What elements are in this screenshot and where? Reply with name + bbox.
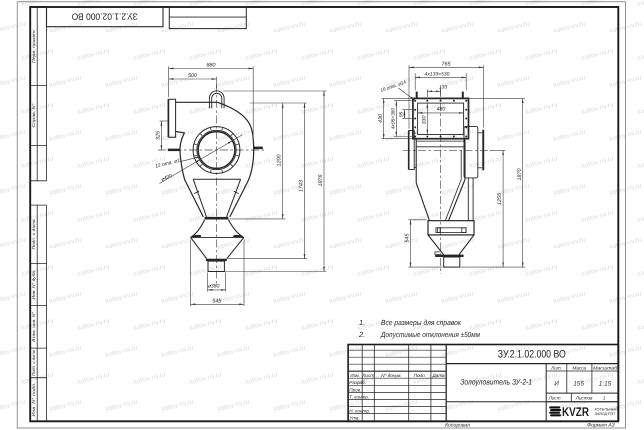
svg-text:155: 155 (573, 381, 584, 388)
svg-text:545: 545 (212, 298, 222, 304)
svg-text:Инв. N° дубл.: Инв. N° дубл. (31, 270, 36, 300)
svg-text:2.: 2. (358, 330, 365, 339)
svg-text:1876: 1876 (318, 175, 324, 187)
svg-text:Масштаб: Масштаб (593, 365, 617, 370)
svg-text:Подп.: Подп. (414, 373, 426, 378)
svg-text:KVZR: KVZR (562, 405, 589, 419)
svg-text:Утв.: Утв. (349, 416, 359, 421)
svg-text:480: 480 (437, 106, 446, 112)
svg-text:Листов: Листов (575, 396, 593, 401)
svg-text:Лист: Лист (361, 373, 374, 378)
svg-text:Инв. N° подл.: Инв. N° подл. (31, 383, 36, 417)
svg-text:4x95=380: 4x95=380 (391, 108, 397, 130)
svg-text:500: 500 (188, 73, 197, 79)
svg-text:880: 880 (207, 63, 216, 69)
svg-text:Н. контр.: Н. контр. (349, 409, 370, 414)
svg-text:1: 1 (603, 396, 606, 401)
svg-text:95: 95 (399, 112, 405, 118)
svg-text:ЗАВОД РЭТ: ЗАВОД РЭТ (595, 412, 616, 416)
svg-text:325: 325 (155, 130, 161, 140)
svg-text:Масса: Масса (573, 365, 587, 370)
svg-text:Справ. N°: Справ. N° (31, 103, 36, 127)
svg-text:Т. контр.: Т. контр. (349, 394, 369, 399)
svg-text:Лист: Лист (548, 396, 561, 401)
svg-text:Изм.: Изм. (350, 373, 360, 378)
svg-text:Лит.: Лит. (550, 365, 562, 370)
svg-text:И: И (554, 381, 559, 388)
svg-text:Формат А3: Формат А3 (587, 423, 615, 429)
svg-text:1743: 1743 (299, 180, 305, 192)
svg-text:1.: 1. (359, 318, 365, 327)
svg-text:⌀380: ⌀380 (208, 284, 220, 290)
svg-text:Подп. и дата: Подп. и дата (31, 219, 36, 250)
svg-text:765: 765 (442, 62, 452, 68)
svg-text:КОТЕЛЬНЫЙ: КОТЕЛЬНЫЙ (595, 406, 619, 411)
svg-text:kotlov-nv.ru: kotlov-nv.ru (637, 0, 644, 8)
svg-text:Подп. и дата: Подп. и дата (31, 349, 36, 376)
svg-text:133: 133 (439, 85, 448, 91)
svg-text:Перв. примен.: Перв. примен. (31, 29, 36, 63)
svg-text:330: 330 (421, 116, 427, 125)
svg-text:Допустимые отклонения ±50мм: Допустимые отклонения ±50мм (380, 330, 480, 339)
svg-text:1255: 1255 (497, 192, 503, 205)
svg-text:Взам. инв. N°: Взам. инв. N° (31, 311, 36, 341)
svg-text:Пров.: Пров. (349, 387, 361, 392)
svg-text:Дата: Дата (431, 373, 445, 378)
svg-text:ЗУ.2.1.02.000 ВО: ЗУ.2.1.02.000 ВО (498, 348, 566, 360)
svg-text:ЗУ.2.1.02.000 ВО: ЗУ.2.1.02.000 ВО (72, 11, 138, 21)
svg-text:Разраб.: Разраб. (349, 380, 366, 385)
svg-text:Все размеры для справок: Все размеры для справок (381, 318, 461, 327)
svg-text:N° докум.: N° докум. (381, 373, 401, 378)
svg-text:1:15: 1:15 (599, 381, 612, 388)
svg-text:1870: 1870 (517, 169, 523, 181)
svg-text:Копировал: Копировал (445, 423, 470, 429)
svg-text:4x133=530: 4x133=530 (425, 72, 450, 78)
svg-text:Золоуловитель ЗУ-2-1: Золоуловитель ЗУ-2-1 (460, 377, 532, 386)
svg-text:545: 545 (405, 233, 411, 243)
svg-text:430: 430 (378, 114, 384, 123)
svg-text:1200: 1200 (277, 155, 283, 167)
